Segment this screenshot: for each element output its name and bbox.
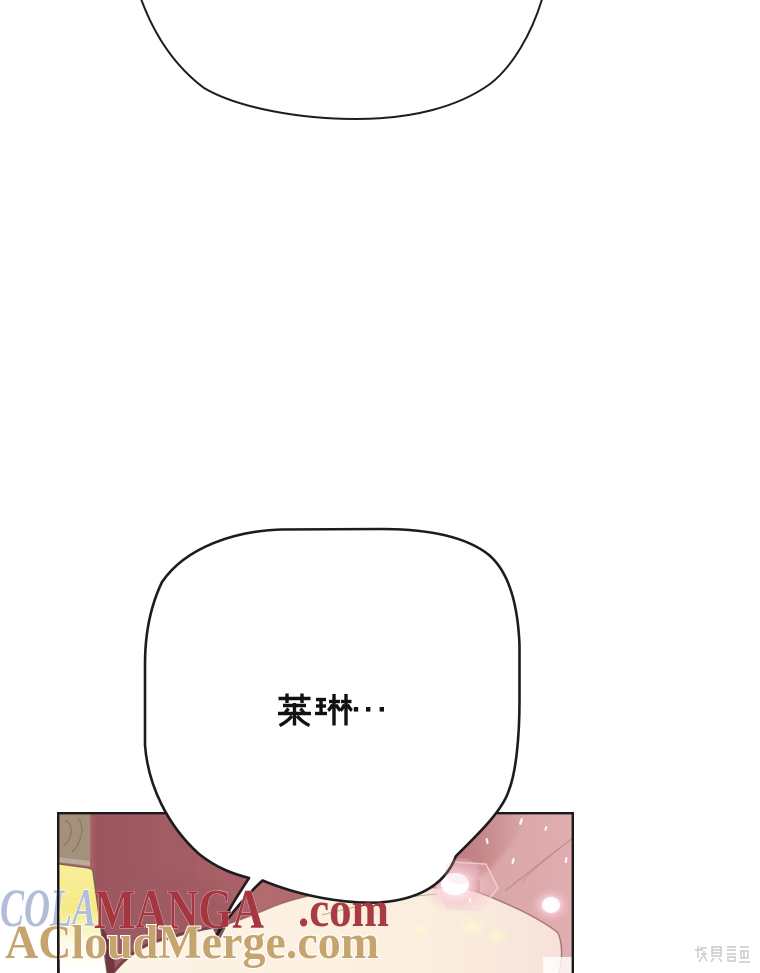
svg-text:ACloudMerge.com: ACloudMerge.com [5, 916, 379, 969]
